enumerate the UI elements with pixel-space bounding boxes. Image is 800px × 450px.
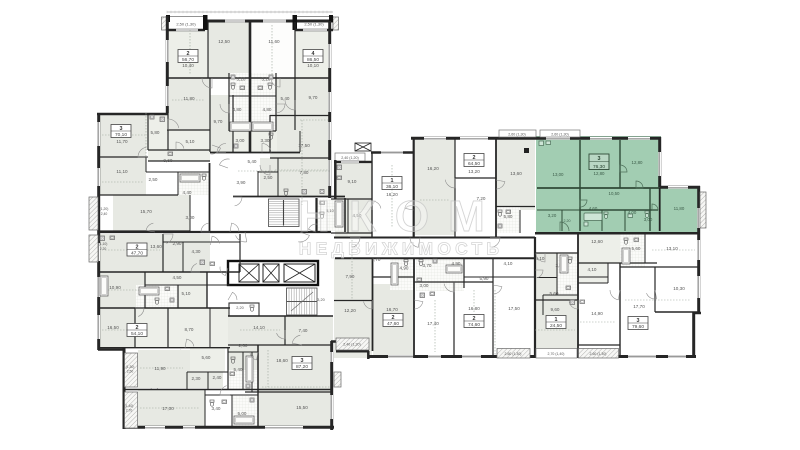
svg-text:3,00: 3,00 bbox=[420, 283, 429, 288]
svg-text:3,20: 3,20 bbox=[317, 298, 324, 302]
svg-text:7,90: 7,90 bbox=[346, 274, 355, 279]
svg-text:3,70: 3,70 bbox=[423, 263, 432, 268]
svg-text:2,20: 2,20 bbox=[564, 219, 571, 223]
svg-text:8,70: 8,70 bbox=[185, 327, 194, 332]
svg-text:10,40: 10,40 bbox=[182, 63, 194, 68]
svg-text:13,60: 13,60 bbox=[150, 244, 162, 249]
svg-text:2,70: 2,70 bbox=[126, 409, 133, 413]
svg-text:9,10: 9,10 bbox=[348, 179, 357, 184]
svg-text:2,40: 2,40 bbox=[213, 375, 222, 380]
svg-text:2,40 (1,20): 2,40 (1,20) bbox=[343, 343, 360, 347]
svg-text:12,80: 12,80 bbox=[632, 160, 644, 165]
svg-text:2: 2 bbox=[473, 155, 476, 161]
svg-text:14,90: 14,90 bbox=[591, 311, 603, 316]
svg-text:4,80: 4,80 bbox=[263, 107, 272, 112]
svg-text:12,60: 12,60 bbox=[591, 239, 603, 244]
svg-text:(1,20): (1,20) bbox=[100, 207, 109, 211]
svg-text:17,50: 17,50 bbox=[298, 143, 310, 148]
svg-text:18,60: 18,60 bbox=[276, 358, 288, 363]
svg-text:16,50: 16,50 bbox=[107, 325, 119, 330]
svg-text:2,50 (1,30): 2,50 (1,30) bbox=[176, 22, 196, 27]
svg-text:2: 2 bbox=[392, 315, 395, 321]
svg-text:11,80: 11,80 bbox=[183, 96, 195, 101]
svg-text:5,90: 5,90 bbox=[480, 276, 489, 281]
svg-text:17,50: 17,50 bbox=[508, 306, 520, 311]
svg-text:2: 2 bbox=[473, 316, 476, 322]
svg-text:87,20: 87,20 bbox=[296, 364, 308, 370]
svg-text:56,70: 56,70 bbox=[182, 57, 194, 63]
svg-text:2: 2 bbox=[136, 244, 139, 250]
svg-text:2,70 (1,40): 2,70 (1,40) bbox=[548, 352, 565, 356]
svg-text:НЕДВИЖИМОСТЬ: НЕДВИЖИМОСТЬ bbox=[299, 239, 503, 259]
svg-text:7,80: 7,80 bbox=[300, 170, 309, 175]
svg-text:2,60 (1,30): 2,60 (1,30) bbox=[508, 133, 525, 137]
svg-text:3,20: 3,20 bbox=[237, 77, 246, 82]
svg-text:(1,10): (1,10) bbox=[99, 242, 108, 246]
svg-text:70,10: 70,10 bbox=[115, 132, 127, 138]
svg-text:74,60: 74,60 bbox=[468, 322, 480, 328]
svg-text:2,20: 2,20 bbox=[236, 306, 243, 310]
svg-text:2,50: 2,50 bbox=[264, 175, 273, 180]
svg-text:11,80: 11,80 bbox=[674, 206, 685, 211]
svg-text:3,00: 3,00 bbox=[186, 215, 195, 220]
svg-text:36,10: 36,10 bbox=[386, 184, 398, 190]
svg-text:2,60 (1,30): 2,60 (1,30) bbox=[590, 352, 607, 356]
svg-text:17,00: 17,00 bbox=[162, 406, 174, 411]
svg-text:4,10: 4,10 bbox=[504, 261, 513, 266]
svg-text:9,60: 9,60 bbox=[551, 307, 560, 312]
svg-text:10,90: 10,90 bbox=[109, 285, 121, 290]
svg-text:2,20: 2,20 bbox=[100, 247, 107, 251]
svg-text:5,40: 5,40 bbox=[234, 367, 243, 372]
svg-text:13,00: 13,00 bbox=[553, 172, 565, 177]
svg-text:(1,30): (1,30) bbox=[126, 365, 135, 369]
svg-text:64,50: 64,50 bbox=[468, 161, 480, 167]
svg-text:16,70: 16,70 bbox=[386, 307, 398, 312]
svg-text:76,30: 76,30 bbox=[593, 164, 605, 170]
svg-text:15,70: 15,70 bbox=[140, 209, 152, 214]
svg-text:4,80: 4,80 bbox=[233, 107, 242, 112]
svg-text:(1,40): (1,40) bbox=[125, 404, 134, 408]
svg-text:17,40: 17,40 bbox=[427, 321, 439, 326]
svg-text:47,70: 47,70 bbox=[131, 251, 143, 257]
svg-text:12,20: 12,20 bbox=[344, 308, 356, 313]
svg-text:2: 2 bbox=[136, 325, 139, 331]
svg-text:НКОМ: НКОМ bbox=[298, 192, 504, 241]
svg-text:3: 3 bbox=[637, 318, 640, 324]
svg-text:2,60 (1,30): 2,60 (1,30) bbox=[505, 352, 522, 356]
svg-text:2,50: 2,50 bbox=[127, 370, 134, 374]
svg-text:54,10: 54,10 bbox=[131, 331, 143, 337]
svg-text:9,70: 9,70 bbox=[214, 119, 223, 124]
svg-text:4,30: 4,30 bbox=[192, 249, 201, 254]
svg-text:16,20: 16,20 bbox=[427, 166, 439, 171]
svg-text:5,10: 5,10 bbox=[182, 291, 191, 296]
svg-text:1: 1 bbox=[555, 317, 558, 323]
svg-text:12,80: 12,80 bbox=[594, 171, 606, 176]
svg-text:5,40: 5,40 bbox=[248, 159, 257, 164]
svg-text:13,10: 13,10 bbox=[666, 246, 678, 251]
svg-text:5,60: 5,60 bbox=[632, 246, 641, 251]
svg-text:4,50: 4,50 bbox=[173, 275, 182, 280]
svg-text:11,60: 11,60 bbox=[268, 39, 280, 44]
svg-text:2,50: 2,50 bbox=[149, 177, 158, 182]
svg-text:3: 3 bbox=[301, 358, 304, 364]
svg-text:10,10: 10,10 bbox=[307, 63, 319, 68]
svg-text:4,00: 4,00 bbox=[628, 210, 637, 215]
svg-text:5,80: 5,80 bbox=[504, 214, 513, 219]
svg-text:2,40: 2,40 bbox=[101, 212, 108, 216]
svg-text:24,50: 24,50 bbox=[550, 323, 562, 329]
svg-text:5,60: 5,60 bbox=[550, 291, 559, 296]
svg-text:2,30: 2,30 bbox=[192, 376, 201, 381]
svg-text:2,90: 2,90 bbox=[173, 241, 182, 246]
svg-text:3: 3 bbox=[120, 126, 123, 132]
svg-text:11,10: 11,10 bbox=[116, 169, 128, 174]
svg-text:7,40: 7,40 bbox=[299, 328, 308, 333]
svg-text:16,80: 16,80 bbox=[468, 306, 480, 311]
svg-text:47,60: 47,60 bbox=[387, 321, 399, 327]
svg-text:3,90: 3,90 bbox=[237, 180, 246, 185]
svg-text:5,60: 5,60 bbox=[202, 355, 211, 360]
svg-text:4,90: 4,90 bbox=[400, 266, 409, 271]
svg-text:5,80: 5,80 bbox=[151, 130, 160, 135]
svg-text:3,40: 3,40 bbox=[212, 406, 221, 411]
svg-text:5,10: 5,10 bbox=[186, 139, 195, 144]
svg-text:12,50: 12,50 bbox=[218, 39, 230, 44]
svg-text:1: 1 bbox=[391, 178, 394, 184]
svg-text:11,70: 11,70 bbox=[116, 139, 128, 144]
svg-text:3: 3 bbox=[598, 156, 601, 162]
svg-text:3,00: 3,00 bbox=[644, 217, 653, 222]
svg-text:2,40 (1,20): 2,40 (1,20) bbox=[341, 156, 358, 160]
svg-text:9,70: 9,70 bbox=[309, 95, 318, 100]
svg-text:2,60: 2,60 bbox=[239, 343, 248, 348]
svg-text:9,60: 9,60 bbox=[164, 158, 173, 163]
svg-text:3,30: 3,30 bbox=[261, 138, 270, 143]
svg-text:86,50: 86,50 bbox=[307, 57, 319, 63]
svg-text:4: 4 bbox=[312, 51, 315, 57]
svg-text:4,40: 4,40 bbox=[183, 190, 192, 195]
svg-text:5,00: 5,00 bbox=[238, 411, 247, 416]
svg-text:13,60: 13,60 bbox=[510, 171, 522, 176]
svg-text:15,50: 15,50 bbox=[296, 405, 308, 410]
svg-text:13,20: 13,20 bbox=[468, 169, 480, 174]
svg-text:10,50: 10,50 bbox=[609, 191, 621, 196]
svg-text:3,00: 3,00 bbox=[236, 138, 245, 143]
svg-text:2: 2 bbox=[187, 51, 190, 57]
svg-text:14,10: 14,10 bbox=[253, 325, 265, 330]
svg-text:2,60 (1,30): 2,60 (1,30) bbox=[551, 133, 568, 137]
svg-text:4,10: 4,10 bbox=[588, 267, 597, 272]
svg-text:4,60: 4,60 bbox=[589, 206, 598, 211]
svg-text:10,30: 10,30 bbox=[673, 286, 685, 291]
svg-text:11,90: 11,90 bbox=[154, 366, 166, 371]
svg-text:3,20: 3,20 bbox=[548, 213, 557, 218]
svg-text:79,60: 79,60 bbox=[632, 324, 644, 330]
svg-text:17,70: 17,70 bbox=[633, 304, 645, 309]
